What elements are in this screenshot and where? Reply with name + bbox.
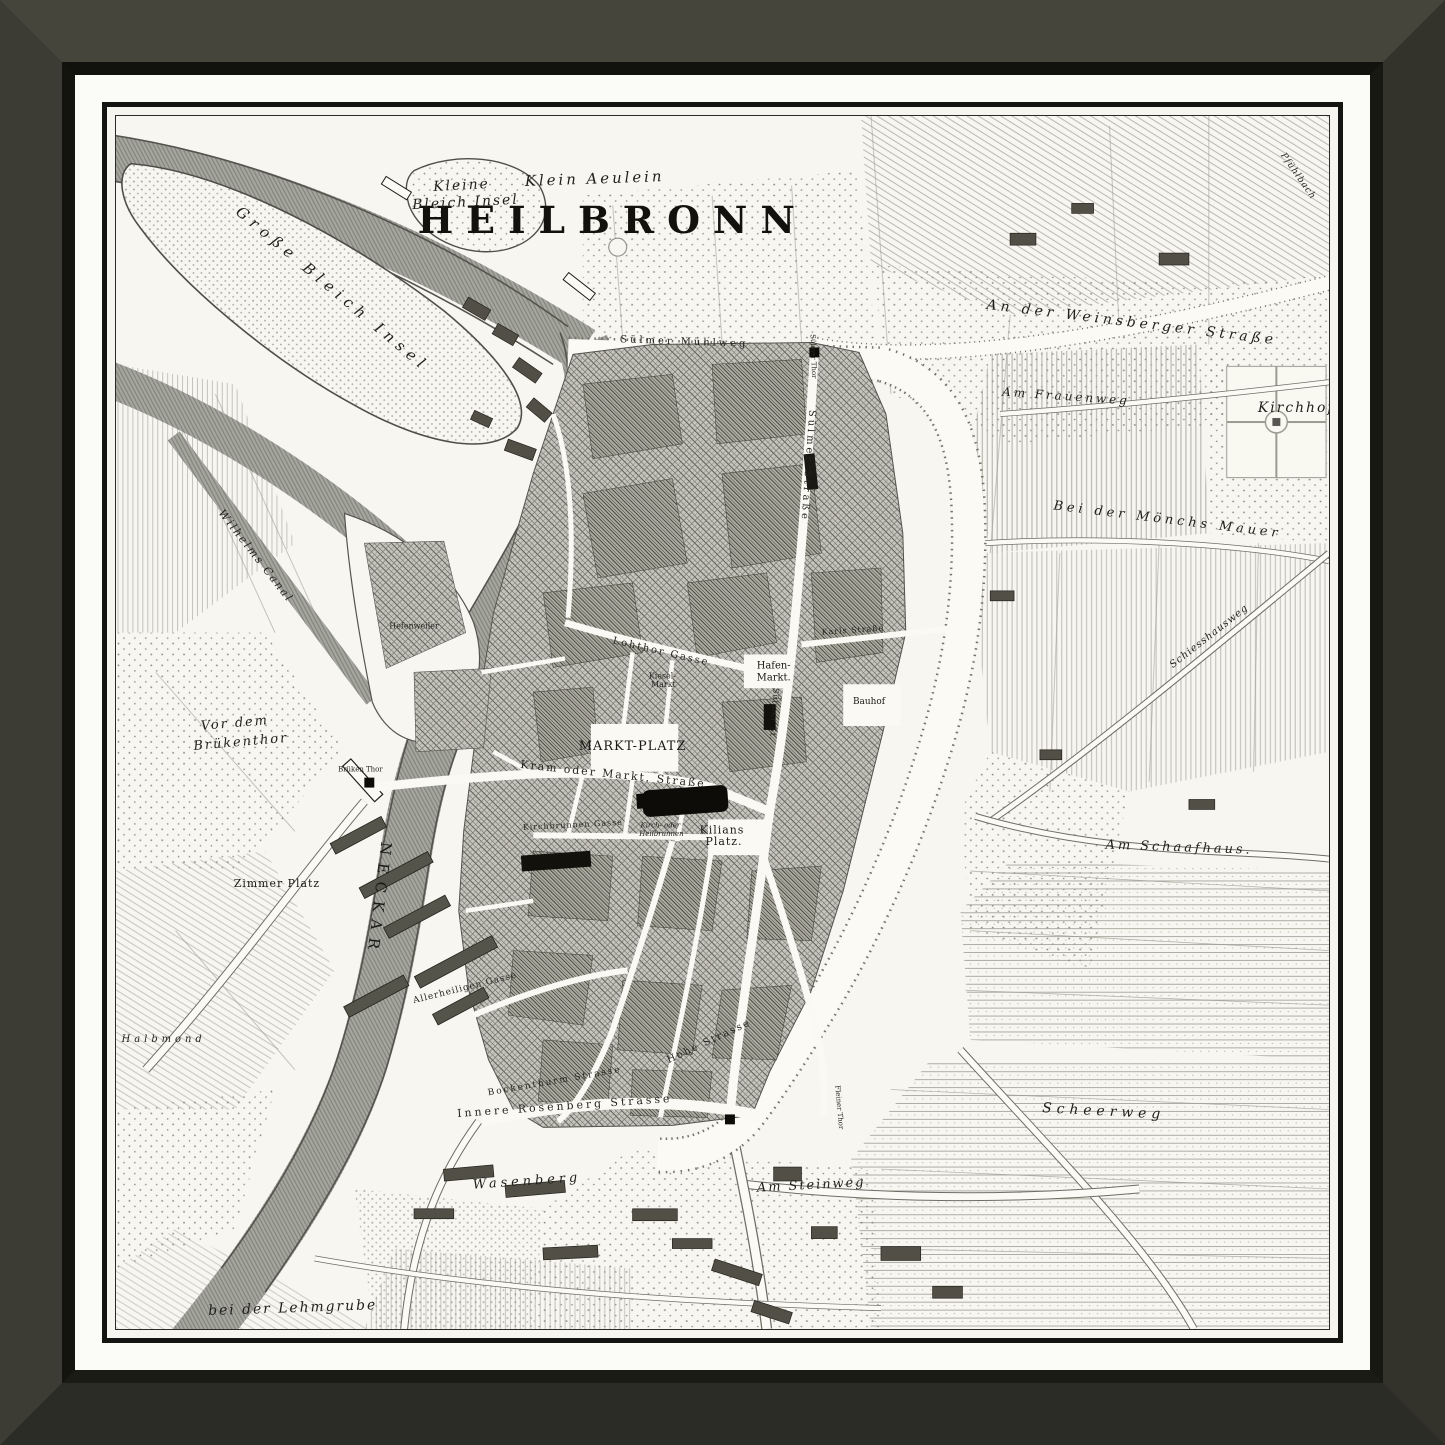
map-label: Brüken Thor [338, 766, 383, 774]
mat-board: HEILBRONNKleineBleich InselKlein Aeulein… [75, 75, 1370, 1370]
framed-map-artwork: HEILBRONNKleineBleich InselKlein Aeulein… [0, 0, 1445, 1445]
map-label: Markt. [757, 672, 791, 683]
map-label: Kirchhof [1257, 400, 1329, 416]
map-label: Bauhof [853, 697, 886, 707]
map-label: Kiesel- [649, 671, 676, 680]
map-neatline: HEILBRONNKleineBleich InselKlein Aeulein… [115, 115, 1330, 1330]
map-label: Hefenweiler [389, 622, 439, 631]
map-label: Kleine [432, 176, 490, 195]
map-label: Halbmond [121, 1034, 206, 1045]
map-label: Platz. [706, 835, 743, 848]
map-label: Heilbrunnen [638, 830, 683, 838]
map-label: Markt [651, 680, 676, 689]
map-label: Sülmer Thor [809, 334, 819, 379]
printed-border: HEILBRONNKleineBleich InselKlein Aeulein… [102, 102, 1343, 1343]
picture-frame: HEILBRONNKleineBleich InselKlein Aeulein… [0, 0, 1445, 1445]
map-label: Hafen- [757, 660, 791, 671]
frame-inner-lip: HEILBRONNKleineBleich InselKlein Aeulein… [62, 62, 1383, 1383]
map-label: Kirch- oder [640, 821, 681, 829]
map-label: Zimmer Platz [234, 877, 320, 890]
city-map-engraving: HEILBRONNKleineBleich InselKlein Aeulein… [116, 116, 1329, 1329]
map-label: MARKT-PLATZ [579, 739, 687, 754]
